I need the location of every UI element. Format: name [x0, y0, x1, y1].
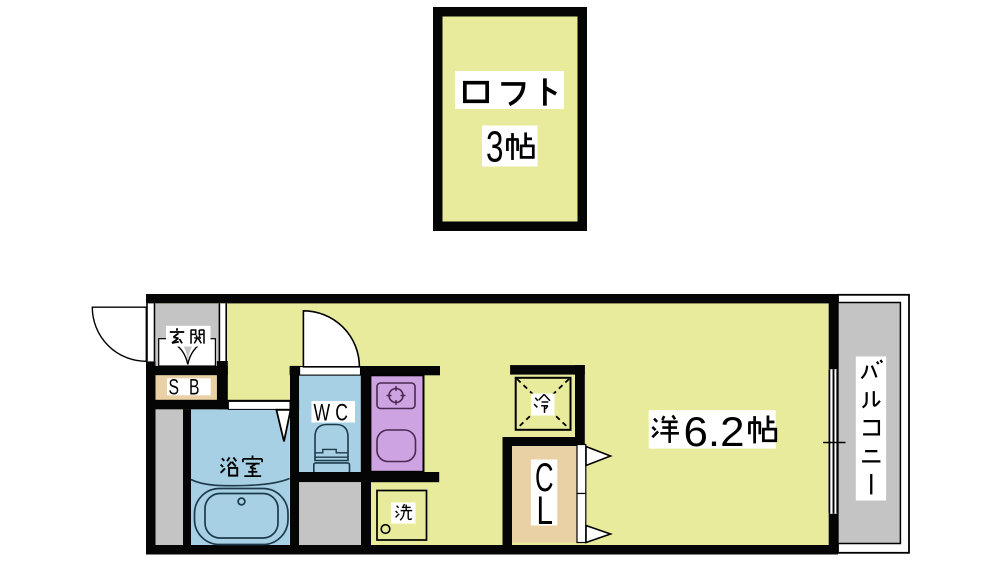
svg-text:3: 3 — [486, 123, 504, 172]
svg-text:SB: SB — [169, 374, 210, 399]
svg-text:WC: WC — [314, 400, 354, 427]
svg-text:6.2: 6.2 — [684, 408, 745, 455]
svg-text:L: L — [537, 489, 554, 533]
